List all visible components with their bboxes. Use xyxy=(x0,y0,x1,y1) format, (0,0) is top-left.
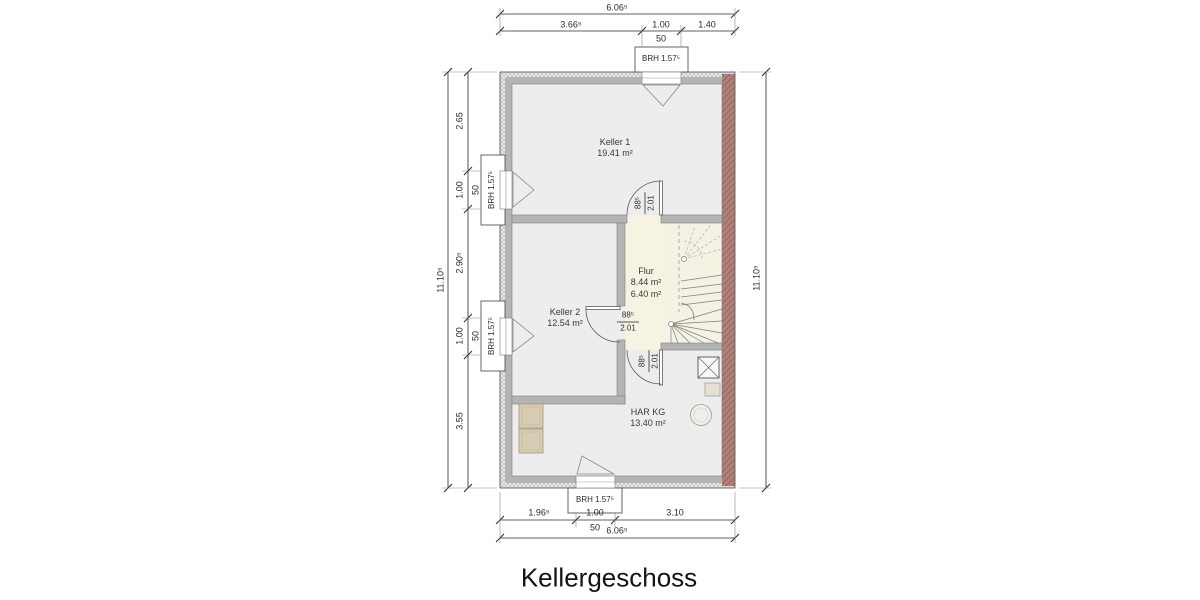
wall-keller2-bottom xyxy=(512,396,625,404)
door-height: 2.01 xyxy=(650,350,661,372)
dim-top-seg-2: 1.00 xyxy=(652,19,670,30)
appliance-1 xyxy=(519,404,543,428)
room-label-keller1: Keller 1 19.41 m² xyxy=(597,137,633,160)
dim-left-sub-1: 50 xyxy=(470,185,481,195)
insulation-hatch-top xyxy=(500,72,735,77)
room-area: 19.41 m² xyxy=(597,148,633,159)
page-title: Kellergeschoss xyxy=(521,563,697,594)
room-label-har: HAR KG 13.40 m² xyxy=(630,407,666,430)
door-label-keller2: 88⁵ 2.01 xyxy=(617,311,639,334)
window-sill-label-left-upper: BRH 1.57⁵ xyxy=(487,171,497,209)
door-leaf xyxy=(660,181,663,215)
dim-left-seg-1: 2.65 xyxy=(454,112,465,130)
wall-keller1-left xyxy=(512,215,627,223)
door-height: 2.01 xyxy=(646,192,657,214)
dim-bottom-sub: 50 xyxy=(590,522,600,533)
dim-bottom-seg-3: 3.10 xyxy=(666,507,684,518)
wall-keller1-right xyxy=(661,215,722,223)
door-leaf xyxy=(586,307,620,310)
room-area-2: 6.40 m² xyxy=(631,289,662,300)
door-label-flur-keller1: 88⁵ 2.01 xyxy=(634,192,657,214)
dim-top-sub: 50 xyxy=(656,33,666,44)
wall-flur-lower xyxy=(617,340,625,404)
room-name: HAR KG xyxy=(630,407,666,418)
room-area: 13.40 m² xyxy=(630,418,666,429)
window-sill-label-top: BRH 1.57⁵ xyxy=(642,54,680,64)
dim-left-seg-3: 2.90⁵ xyxy=(454,252,465,273)
wall-top xyxy=(505,77,735,84)
dim-right-overall-text: 11.10⁵ xyxy=(751,265,762,291)
wall-bottom xyxy=(505,476,735,483)
room-area: 12.54 m² xyxy=(547,318,583,329)
dim-left-overall-text: 11.10⁵ xyxy=(435,267,446,293)
room-name: Flur xyxy=(631,266,662,277)
room-name: Keller 2 xyxy=(547,307,583,318)
dim-bottom-seg-2: 1.00 xyxy=(586,507,604,518)
room-area: 8.44 m² xyxy=(631,277,662,288)
dim-left-sub-2: 50 xyxy=(470,331,481,341)
dim-bottom-overall-text: 6.06⁵ xyxy=(606,525,627,536)
dim-top-seg-3: 1.40 xyxy=(698,19,716,30)
dim-bottom-seg-1: 1.96⁵ xyxy=(528,507,549,518)
dim-left-seg-4: 1.00 xyxy=(454,327,465,345)
insulation-hatch-left xyxy=(500,72,505,488)
door-label-har: 88⁵ 2.01 xyxy=(638,350,661,372)
door-width: 88⁵ xyxy=(634,192,646,214)
dim-left-seg-2: 1.00 xyxy=(454,181,465,199)
newel-post-upper xyxy=(682,257,687,262)
insulation-hatch-bottom xyxy=(500,483,735,488)
dim-top-overall-text: 6.06⁵ xyxy=(606,2,627,13)
dim-left-seg-5: 3.55 xyxy=(454,412,465,430)
door-width: 88⁵ xyxy=(617,311,639,323)
room-label-flur: Flur 8.44 m² 6.40 m² xyxy=(631,266,662,300)
room-name: Keller 1 xyxy=(597,137,633,148)
wall-left xyxy=(505,77,512,483)
floor-plan-page: Keller 1 19.41 m² Keller 2 12.54 m² Flur… xyxy=(0,0,1200,600)
window-sill-label-bottom: BRH 1.57⁵ xyxy=(576,495,614,505)
wall-flur-upper xyxy=(617,223,625,306)
dim-top-seg-1: 3.66⁵ xyxy=(560,19,581,30)
party-wall-hatch xyxy=(722,74,735,486)
wall-under-stairs xyxy=(661,343,722,350)
newel-post-lower xyxy=(669,322,674,327)
utility-box xyxy=(705,383,720,396)
door-height: 2.01 xyxy=(617,323,639,334)
window-sill-label-left-lower: BRH 1.57⁵ xyxy=(487,317,497,355)
room-label-keller2: Keller 2 12.54 m² xyxy=(547,307,583,330)
door-width: 88⁵ xyxy=(638,350,650,372)
appliance-2 xyxy=(519,429,543,453)
